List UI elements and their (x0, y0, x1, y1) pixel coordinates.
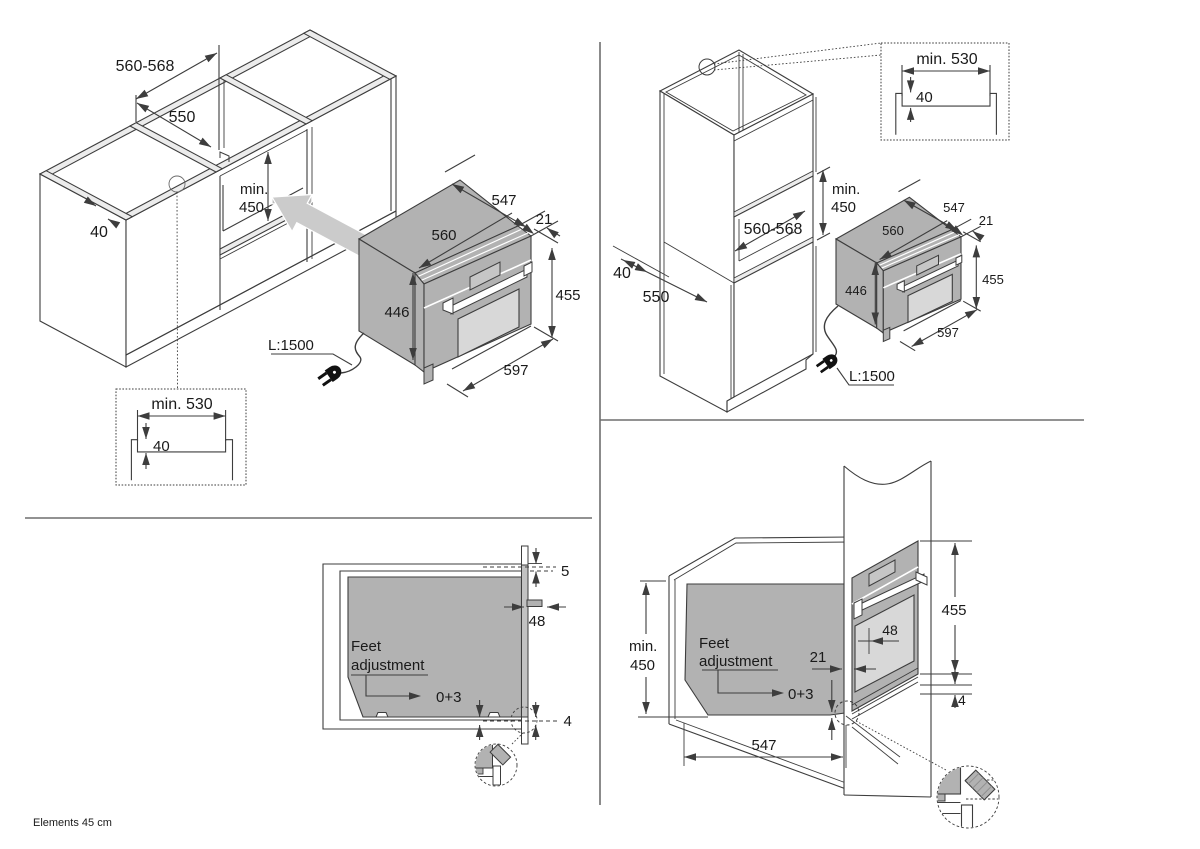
svg-text:40: 40 (613, 265, 631, 282)
svg-text:450: 450 (630, 657, 655, 674)
svg-text:L:1500: L:1500 (849, 368, 895, 385)
svg-text:48: 48 (882, 622, 898, 638)
svg-text:21: 21 (979, 213, 993, 228)
svg-text:40: 40 (916, 89, 933, 106)
svg-text:21: 21 (810, 649, 827, 666)
svg-text:560: 560 (431, 227, 456, 244)
svg-text:Feet: Feet (699, 635, 730, 652)
svg-text:L:1500: L:1500 (268, 337, 314, 354)
svg-text:455: 455 (941, 602, 966, 619)
svg-text:550: 550 (643, 289, 670, 306)
svg-text:48: 48 (529, 613, 546, 630)
svg-text:min.: min. (240, 181, 268, 198)
svg-text:597: 597 (937, 325, 959, 340)
svg-text:Feet: Feet (351, 638, 382, 655)
svg-text:min.: min. (629, 638, 657, 655)
svg-text:0+3: 0+3 (788, 686, 813, 703)
svg-text:560: 560 (882, 223, 904, 238)
svg-text:40: 40 (90, 224, 108, 241)
svg-text:4: 4 (564, 713, 572, 730)
svg-text:min. 530: min. 530 (151, 396, 212, 413)
svg-text:Elements 45 cm: Elements 45 cm (33, 817, 112, 829)
svg-text:min. 530: min. 530 (916, 51, 977, 68)
svg-text:597: 597 (503, 362, 528, 379)
svg-text:550: 550 (169, 109, 196, 126)
svg-text:450: 450 (831, 199, 856, 216)
svg-text:4: 4 (958, 692, 966, 708)
svg-text:560-568: 560-568 (744, 221, 803, 238)
svg-text:40: 40 (153, 438, 170, 455)
svg-text:547: 547 (751, 737, 776, 754)
svg-text:455: 455 (555, 287, 580, 304)
svg-text:0+3: 0+3 (436, 689, 461, 706)
svg-text:min.: min. (832, 181, 860, 198)
svg-text:547: 547 (943, 200, 965, 215)
svg-text:455: 455 (982, 272, 1004, 287)
svg-text:446: 446 (384, 304, 409, 321)
svg-text:21: 21 (536, 211, 553, 228)
svg-text:560-568: 560-568 (116, 58, 175, 75)
svg-text:446: 446 (845, 283, 867, 298)
svg-text:adjustment: adjustment (699, 653, 773, 670)
svg-text:547: 547 (491, 192, 516, 209)
svg-text:5: 5 (561, 563, 569, 580)
svg-text:450: 450 (239, 199, 264, 216)
svg-text:adjustment: adjustment (351, 657, 425, 674)
